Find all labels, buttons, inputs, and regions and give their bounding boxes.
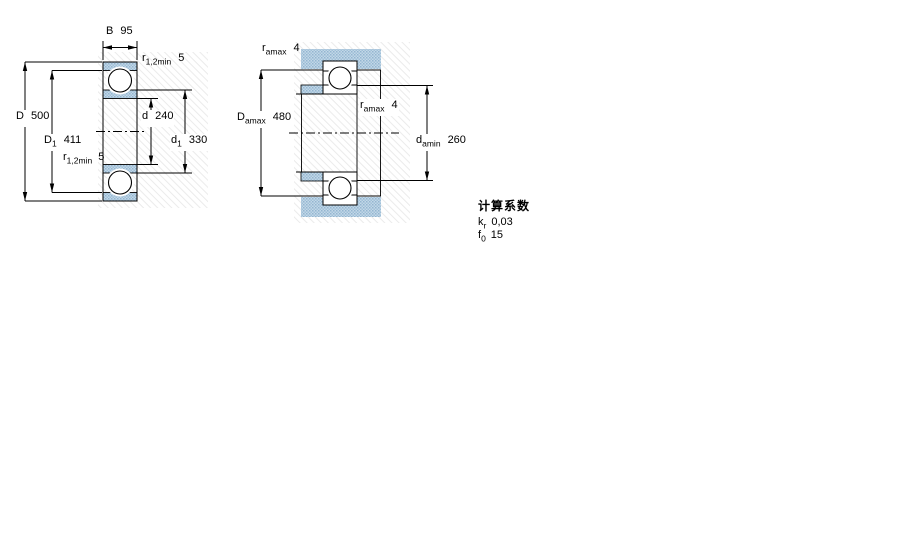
dim-label-ramax-top: ramax4	[262, 42, 300, 59]
dim-symbol: D	[44, 134, 52, 146]
arrow-D1-up	[50, 71, 54, 80]
dim-symbol: d	[142, 110, 148, 122]
ball-bottom-right	[329, 177, 351, 199]
dim-value: 4	[391, 99, 397, 111]
dim-value: 5	[178, 52, 184, 64]
dim-label-damin: damin260	[415, 134, 467, 151]
arrow-B-left	[103, 45, 112, 49]
ball-bottom	[109, 171, 132, 194]
technical-drawing-canvas	[0, 0, 900, 560]
arrow-B-right	[128, 45, 137, 49]
arrow-D-up	[23, 62, 27, 71]
dim-label-r-bottom: r1,2min5	[62, 151, 104, 168]
dim-label-d1: d1330	[170, 134, 208, 151]
arrow-D-down	[23, 192, 27, 201]
right-figure-abutments	[259, 42, 433, 223]
dim-label-d: d240	[141, 110, 174, 127]
dim-label-B: B95	[106, 25, 133, 42]
dim-label-r-top: r1,2min5	[142, 52, 184, 69]
calculation-factors-title: 计算系数	[478, 197, 530, 214]
factor-value: 0,03	[491, 216, 512, 228]
dim-label-Damax: Damax480	[236, 111, 292, 128]
shaft-shoulder-top	[301, 85, 323, 94]
ball-top-right	[329, 67, 351, 89]
calc-factor-f0: f015	[478, 229, 503, 246]
dim-value: 500	[31, 110, 49, 122]
dim-value: 480	[273, 111, 291, 123]
dim-symbol: D	[237, 111, 245, 123]
dim-symbol: B	[106, 25, 113, 37]
dim-value: 411	[64, 134, 82, 146]
dim-subscript: amax	[266, 47, 287, 57]
dim-value: 240	[155, 110, 173, 122]
arrow-damin-up	[425, 86, 429, 95]
ball-top	[109, 69, 132, 92]
shaft-shoulder-bottom	[301, 172, 323, 181]
dim-value: 5	[98, 151, 104, 163]
dim-subscript: 1	[52, 139, 57, 149]
dim-subscript: amax	[245, 116, 266, 126]
bearing-drawing-page: B95 r1,2min5 D500 D1411 r1,2min5 d240 d1…	[0, 0, 900, 560]
dim-subscript: amax	[364, 104, 385, 114]
dim-value: 95	[120, 25, 132, 37]
dim-subscript: amin	[422, 139, 440, 149]
factor-value: 15	[491, 229, 503, 241]
arrow-D1-down	[50, 184, 54, 193]
dim-subscript: 1	[177, 139, 182, 149]
dim-label-D1: D1411	[43, 134, 82, 151]
arrow-Damax-up	[259, 70, 263, 79]
dim-value: 330	[189, 134, 207, 146]
arrow-damin-down	[425, 172, 429, 181]
dim-symbol: D	[16, 110, 24, 122]
dim-label-ramax-mid: ramax4	[359, 99, 399, 116]
dim-symbol-group: r1,2min	[62, 151, 93, 163]
dim-value: 260	[448, 134, 466, 146]
factor-subscript: 0	[481, 234, 486, 244]
arrow-Damax-down	[259, 187, 263, 196]
dim-subscript: 1,2min	[146, 57, 172, 67]
dim-value: 4	[293, 42, 299, 54]
dim-label-D: D500	[15, 110, 50, 127]
dim-subscript: 1,2min	[67, 156, 93, 166]
